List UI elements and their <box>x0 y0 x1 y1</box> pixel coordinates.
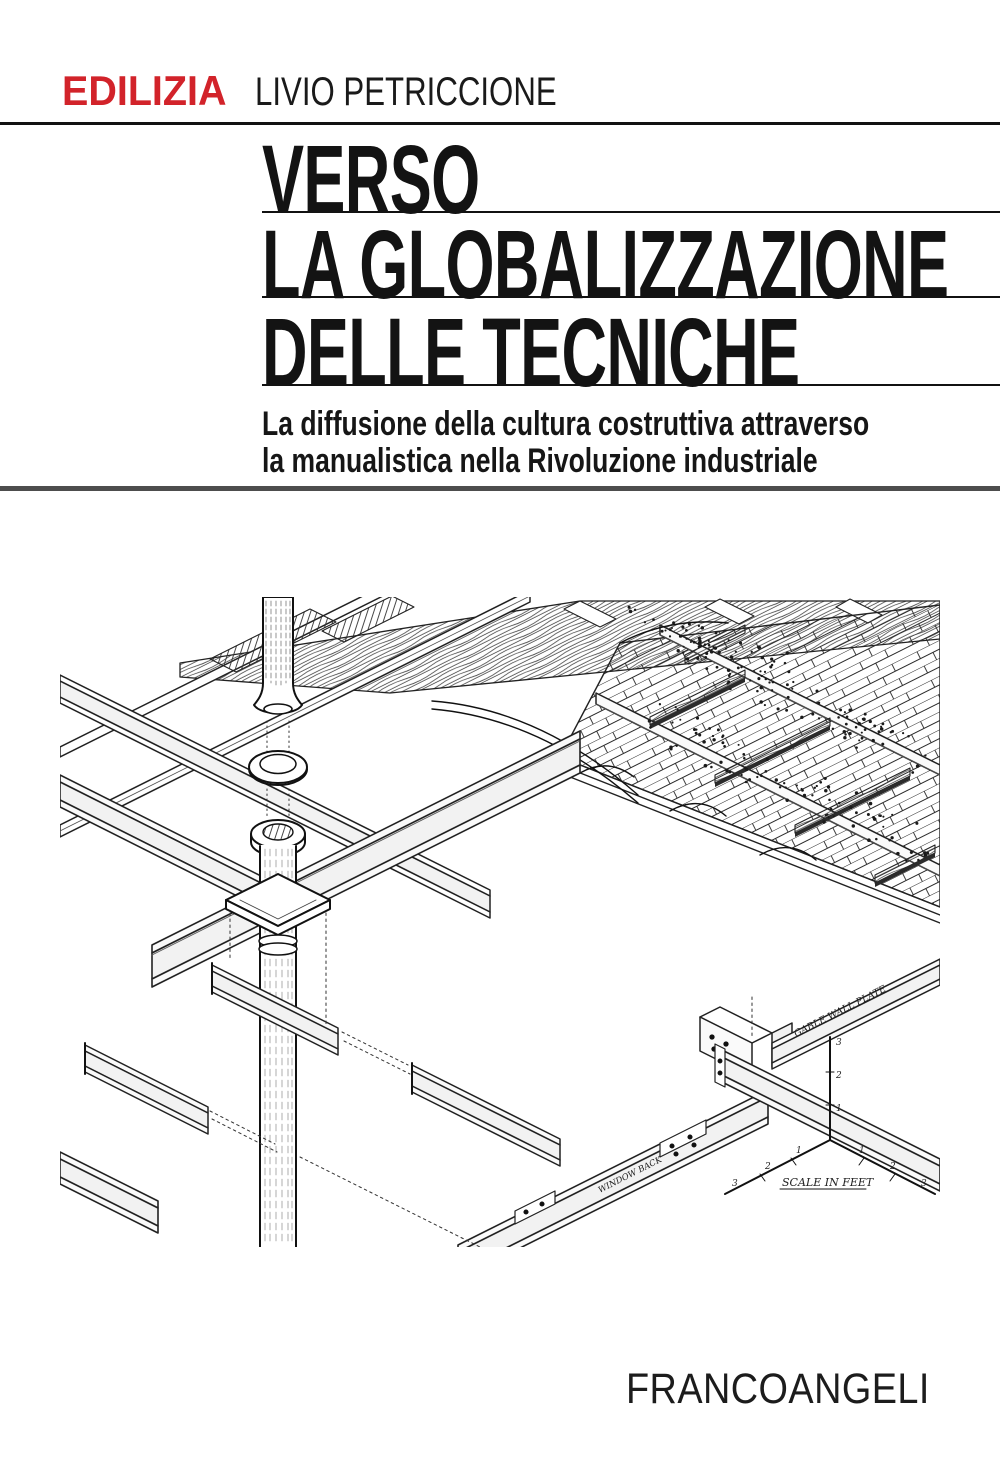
title-line-1: VERSO <box>262 128 1000 213</box>
author-name: LIVIO PETRICCIONE <box>255 72 557 112</box>
tick-v1: 1 <box>836 1104 842 1114</box>
tick-v2: 2 <box>835 1071 842 1081</box>
header-rule <box>0 122 1000 125</box>
column-collar <box>259 935 297 955</box>
tick-r1: 1 <box>859 1146 865 1156</box>
title-line-2: LA GLOBALIZZAZIONE <box>262 213 1000 298</box>
publisher-logo: FRANCOANGELI <box>626 1368 930 1411</box>
title-text-3: DELLE TECNICHE <box>262 304 799 401</box>
book-cover: EDILIZIA LIVIO PETRICCIONE VERSO LA GLOB… <box>0 0 1000 1484</box>
front-beams <box>60 959 940 1247</box>
tick-l1: 1 <box>796 1146 802 1156</box>
tick-r2: 2 <box>889 1162 896 1172</box>
left-beam <box>60 775 265 910</box>
subtitle: La diffusione della cultura costruttiva … <box>262 406 869 480</box>
beam-bottom-left <box>60 1152 158 1233</box>
gable-beam <box>772 959 940 1069</box>
subtitle-line-2: la manualistica nella Rivoluzione indust… <box>262 443 869 480</box>
exploded-ring <box>249 751 307 785</box>
beam-floating-left <box>85 1043 208 1134</box>
subtitle-rule <box>0 486 1000 491</box>
cover-illustration: 1 2 3 1 2 3 1 2 3 SCALE IN FEET GABLE WA… <box>60 597 940 1247</box>
tick-r3: 3 <box>921 1179 927 1189</box>
scale-caption: SCALE IN FEET <box>782 1176 875 1189</box>
tick-l3: 3 <box>732 1179 738 1189</box>
beam-mid-front <box>412 1063 560 1166</box>
tick-l2: 2 <box>764 1162 771 1172</box>
series-label: EDILIZIA <box>62 70 227 112</box>
subtitle-line-1: La diffusione della cultura costruttiva … <box>262 406 869 443</box>
tick-v3: 3 <box>836 1038 842 1048</box>
title-line-3: DELLE TECNICHE <box>262 298 1000 386</box>
